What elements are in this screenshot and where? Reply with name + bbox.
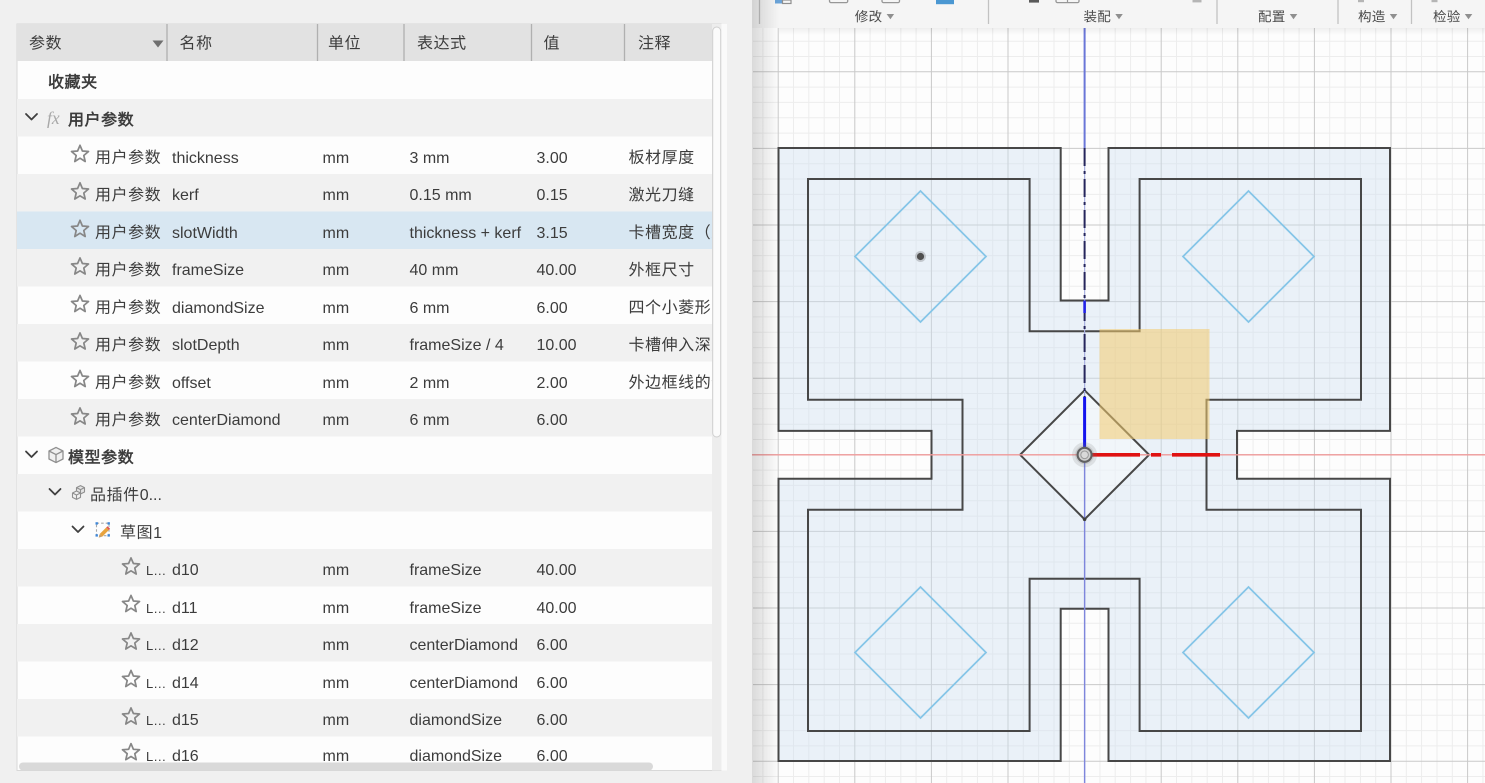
svg-text:6 mm: 6 mm [410,412,450,429]
svg-text:mm: mm [323,262,350,279]
svg-text:d10: d10 [172,562,199,579]
svg-text:offset: offset [172,375,211,392]
svg-text:1: 1 [153,525,162,542]
svg-text:slotWidth: slotWidth [172,225,238,242]
svg-text:frameSize / 4: frameSize / 4 [410,337,504,354]
svg-text:centerDiamond: centerDiamond [410,637,519,654]
svg-text:3 mm: 3 mm [410,150,450,167]
svg-text:6.00: 6.00 [537,748,568,765]
svg-text:mm: mm [323,712,350,729]
svg-text:frameSize: frameSize [410,600,482,617]
svg-text:3.15: 3.15 [537,225,568,242]
svg-text:3.00: 3.00 [537,150,568,167]
svg-text:L…: L… [146,676,166,691]
svg-text:mm: mm [323,600,350,617]
svg-text:mm: mm [323,675,350,692]
svg-text:mm: mm [323,225,350,242]
svg-text:mm: mm [323,300,350,317]
svg-text:mm: mm [323,375,350,392]
svg-text:frameSize: frameSize [172,262,244,279]
svg-text:0.15: 0.15 [537,187,568,204]
svg-text:6.00: 6.00 [537,712,568,729]
svg-text:mm: mm [323,748,350,765]
svg-text:thickness + kerf: thickness + kerf [410,225,522,242]
svg-text:d11: d11 [172,600,198,617]
svg-text:thickness: thickness [172,150,239,167]
svg-text:6 mm: 6 mm [410,300,450,317]
svg-text:diamondSize: diamondSize [410,712,503,729]
svg-text:2.00: 2.00 [537,375,568,392]
svg-text:slotDepth: slotDepth [172,337,240,354]
svg-text:40 mm: 40 mm [410,262,459,279]
svg-text:6.00: 6.00 [537,637,568,654]
svg-text:L…: L… [146,601,166,616]
svg-text:mm: mm [323,150,350,167]
svg-text:d14: d14 [172,675,199,692]
svg-text:L…: L… [146,563,166,578]
svg-text:0.15 mm: 0.15 mm [410,187,472,204]
svg-text:2 mm: 2 mm [410,375,450,392]
svg-text:mm: mm [323,187,350,204]
svg-text:6.00: 6.00 [537,675,568,692]
svg-text:mm: mm [323,337,350,354]
svg-text:centerDiamond: centerDiamond [410,675,519,692]
svg-text:6.00: 6.00 [537,412,568,429]
svg-text:centerDiamond: centerDiamond [172,412,281,429]
svg-text:L…: L… [146,749,166,764]
svg-text:diamondSize: diamondSize [410,748,503,765]
svg-text:frameSize: frameSize [410,562,482,579]
svg-text:mm: mm [323,562,350,579]
svg-text:fx: fx [47,108,60,128]
svg-text:10.00: 10.00 [537,337,577,354]
svg-text:40.00: 40.00 [537,562,577,579]
svg-text:d15: d15 [172,712,199,729]
svg-text:kerf: kerf [172,187,199,204]
svg-text:d16: d16 [172,748,199,765]
svg-text:mm: mm [323,412,350,429]
svg-text:40.00: 40.00 [537,262,577,279]
svg-text:L…: L… [146,713,166,728]
svg-text:40.00: 40.00 [537,600,577,617]
svg-text:d12: d12 [172,637,199,654]
svg-text:mm: mm [323,637,350,654]
svg-text:0...: 0... [140,487,162,504]
svg-text:L…: L… [146,638,166,653]
svg-text:diamondSize: diamondSize [172,300,265,317]
svg-text:6.00: 6.00 [537,300,568,317]
